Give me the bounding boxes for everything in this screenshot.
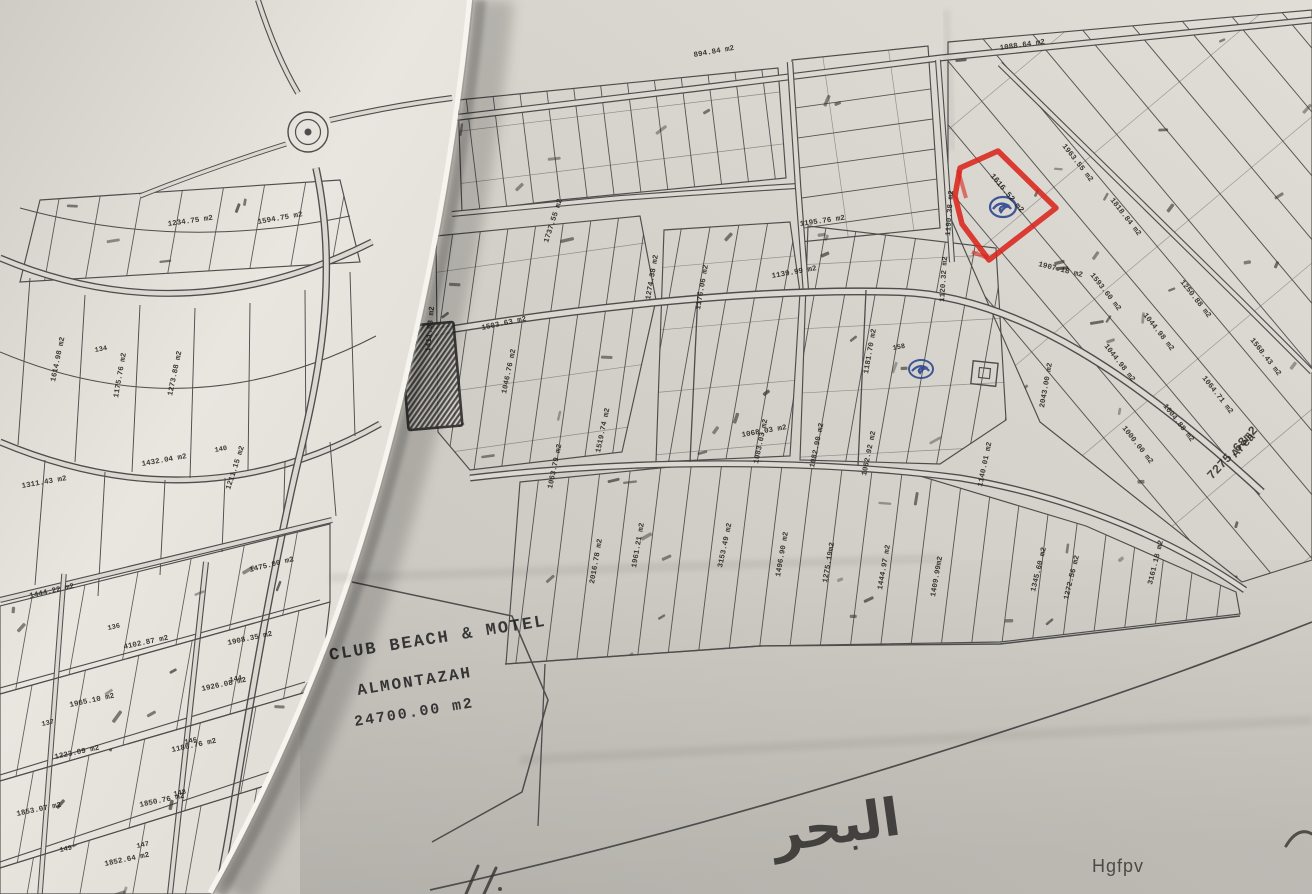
ink-smudge [850, 615, 857, 618]
map-svg: 894.84 m21088.64 m21737.55 m21195.76 m21… [0, 0, 1312, 894]
overlay-watermark-text: Hgfpv [1092, 856, 1144, 876]
ink-smudge [901, 367, 908, 371]
ink-smudge [11, 607, 15, 614]
ink-smudge [67, 204, 78, 207]
ink-smudge [274, 705, 284, 708]
ink-smudge [1158, 128, 1168, 131]
ink-smudge [1005, 619, 1014, 623]
roundabout-center [305, 129, 312, 136]
ink-smudge [1137, 480, 1144, 484]
ink-smudge [601, 356, 613, 359]
map-photo: 894.84 m21088.64 m21737.55 m21195.76 m21… [0, 0, 1312, 894]
